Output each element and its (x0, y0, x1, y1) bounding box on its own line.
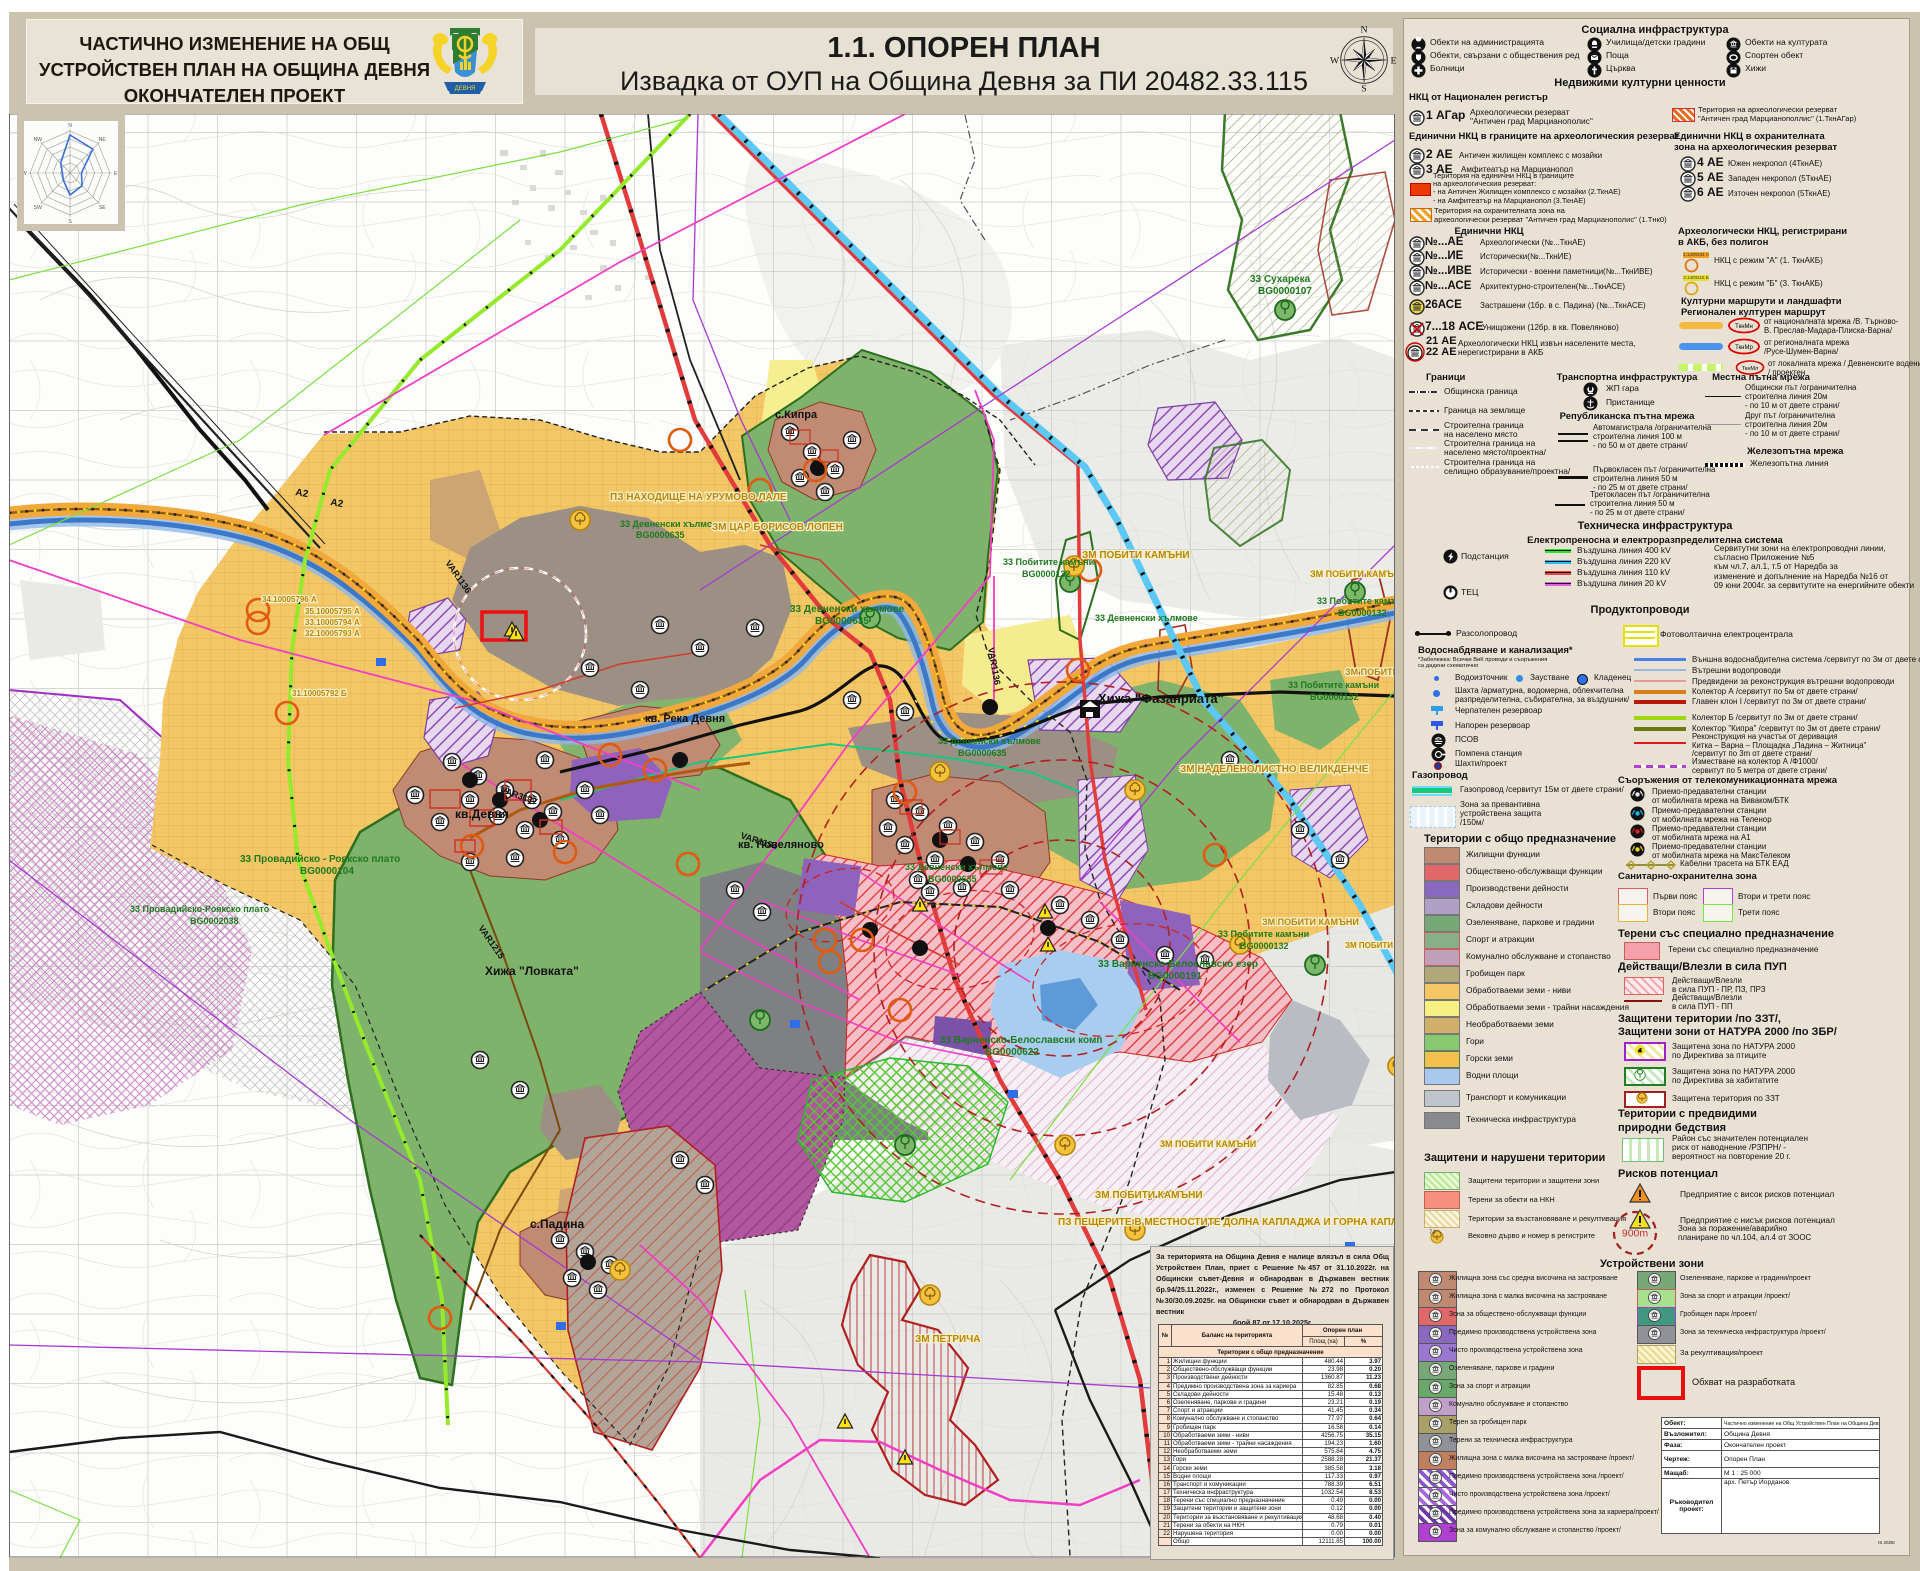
svg-text:SE: SE (99, 205, 106, 211)
svg-text:NE: NE (99, 137, 107, 143)
svg-text:с.Кипра: с.Кипра (775, 409, 818, 421)
svg-text:E: E (1391, 56, 1397, 67)
svg-text:33 Девненски хълмове: 33 Девненски хълмове (905, 862, 1008, 872)
svg-text:ЗМ ПОБИТИ КАМЪНИ: ЗМ ПОБИТИ КАМЪНИ (1082, 550, 1190, 561)
svg-text:BG0000635: BG0000635 (928, 874, 977, 884)
svg-text:35.10005795 А: 35.10005795 А (305, 607, 360, 616)
svg-text:33 Побитите камъни: 33 Побитите камъни (1288, 680, 1379, 690)
svg-text:33.10005794 А: 33.10005794 А (305, 618, 360, 627)
svg-text:BG0000635: BG0000635 (958, 748, 1007, 758)
svg-text:W: W (1330, 56, 1340, 67)
svg-text:ЗМ ПОБИТИ КАМЪНИ: ЗМ ПОБИТИ КАМЪНИ (1262, 917, 1359, 927)
svg-text:ЗМ ПОБИТИ КАМЪНИ: ЗМ ПОБИТИ КАМЪНИ (1310, 569, 1395, 579)
svg-text:33 Варненско-Белославски комп: 33 Варненско-Белославски комп (940, 1035, 1102, 1046)
svg-text:31.10005792 Б: 31.10005792 Б (292, 689, 347, 698)
svg-text:кв.Девня: кв.Девня (455, 807, 509, 821)
svg-text:33 Провадийско-Роякско плато: 33 Провадийско-Роякско плато (130, 904, 270, 914)
svg-text:34.10005796 А: 34.10005796 А (262, 595, 317, 604)
svg-text:ТкнМр: ТкнМр (1735, 345, 1753, 351)
svg-text:ДЕВНЯ: ДЕВНЯ (455, 86, 476, 92)
svg-text:кв. Река Девня: кв. Река Девня (645, 713, 725, 725)
svg-text:W: W (24, 171, 27, 177)
svg-text:BG0000132: BG0000132 (1022, 569, 1071, 579)
svg-text:BG0000107: BG0000107 (1258, 286, 1312, 297)
svg-text:ТкнМн: ТкнМн (1735, 324, 1753, 330)
svg-text:BG0000635: BG0000635 (636, 530, 685, 540)
svg-text:Хижа "Ловката": Хижа "Ловката" (485, 964, 579, 978)
svg-text:BG0000191: BG0000191 (1148, 971, 1202, 982)
svg-text:BG0002038: BG0002038 (190, 916, 239, 926)
svg-text:с.Падина: с.Падина (530, 1217, 585, 1231)
svg-text:ПС: ПС (1436, 738, 1442, 743)
svg-text:33 Варненско-Белославско езер: 33 Варненско-Белославско езер (1098, 959, 1258, 970)
svg-text:33 Девненски хълмове: 33 Девненски хълмове (620, 519, 723, 529)
svg-text:SW: SW (34, 205, 42, 211)
svg-text:N: N (1360, 26, 1367, 35)
svg-text:ЗМ ПОБИТИ КАМЪНИ: ЗМ ПОБИТИ КАМЪНИ (1345, 667, 1395, 677)
svg-text:ЗМ ЦАР БОРИСОВ ЛОПЕН: ЗМ ЦАР БОРИСОВ ЛОПЕН (712, 522, 843, 533)
svg-text:А2: А2 (294, 487, 309, 500)
svg-text:33 Сухарека: 33 Сухарека (1250, 274, 1311, 285)
svg-text:ЗМ ПЕТРИЧА: ЗМ ПЕТРИЧА (915, 1334, 980, 1345)
svg-text:3М ПОБИТИ КАМЪНИ: 3М ПОБИТИ КАМЪНИ (1160, 1139, 1256, 1149)
svg-text:NW: NW (34, 137, 43, 143)
svg-text:ПЗ НАХОДИЩЕ НА УРУМОВО ЛАЛЕ: ПЗ НАХОДИЩЕ НА УРУМОВО ЛАЛЕ (610, 492, 787, 503)
svg-text:E: E (114, 171, 118, 177)
svg-text:BG0000622: BG0000622 (985, 1047, 1039, 1058)
svg-text:33 Побитите камъни: 33 Побитите камъни (1003, 557, 1094, 567)
svg-text:ПЗ ПЕЩЕРИТЕ В МЕСТНОСТИТЕ ДОЛ: ПЗ ПЕЩЕРИТЕ В МЕСТНОСТИТЕ ДОЛНА КАПЛАДЖА… (1058, 1217, 1395, 1228)
svg-text:33 Побитите камъни: 33 Побитите камъни (1317, 596, 1395, 606)
svg-text:BG0000132: BG0000132 (1310, 692, 1359, 702)
svg-text:BG0000132: BG0000132 (1338, 608, 1387, 618)
svg-text:900m: 900m (1622, 1228, 1649, 1240)
svg-text:33 Провадийско - Роякско плат: 33 Провадийско - Роякско плато (240, 854, 400, 865)
svg-text:33 Побитите камъни: 33 Побитите камъни (1218, 929, 1309, 939)
svg-text:BG0000635: BG0000635 (815, 616, 869, 627)
svg-text:33 Девненски хълмове: 33 Девненски хълмове (1095, 613, 1198, 623)
svg-text:Хижа "Фазанриата": Хижа "Фазанриата" (1098, 691, 1224, 706)
svg-text:А2: А2 (329, 497, 344, 510)
svg-text:32.10005793 А: 32.10005793 А (305, 629, 360, 638)
svg-text:BG0000132: BG0000132 (1240, 941, 1289, 951)
svg-text:N: N (68, 123, 72, 129)
svg-text:ЗМ НАДЕЛЕНОЛИСТНО ВЕЛИКДЕНЧЕ: ЗМ НАДЕЛЕНОЛИСТНО ВЕЛИКДЕНЧЕ (1180, 764, 1369, 775)
svg-text:ЗМ ПОБИТИ КАМЪНИ: ЗМ ПОБИТИ КАМЪНИ (1095, 1190, 1203, 1201)
svg-text:33 Девненски хълмове: 33 Девненски хълмове (938, 736, 1041, 746)
svg-text:BG0000104: BG0000104 (300, 866, 354, 877)
svg-text:S: S (1361, 83, 1366, 94)
svg-text:33 Девненски хълмове: 33 Девненски хълмове (790, 604, 905, 615)
svg-text:S: S (68, 219, 72, 224)
svg-text:ЗМ ПОБИТИ КАМЪНИ: ЗМ ПОБИТИ КАМЪНИ (1345, 941, 1395, 950)
